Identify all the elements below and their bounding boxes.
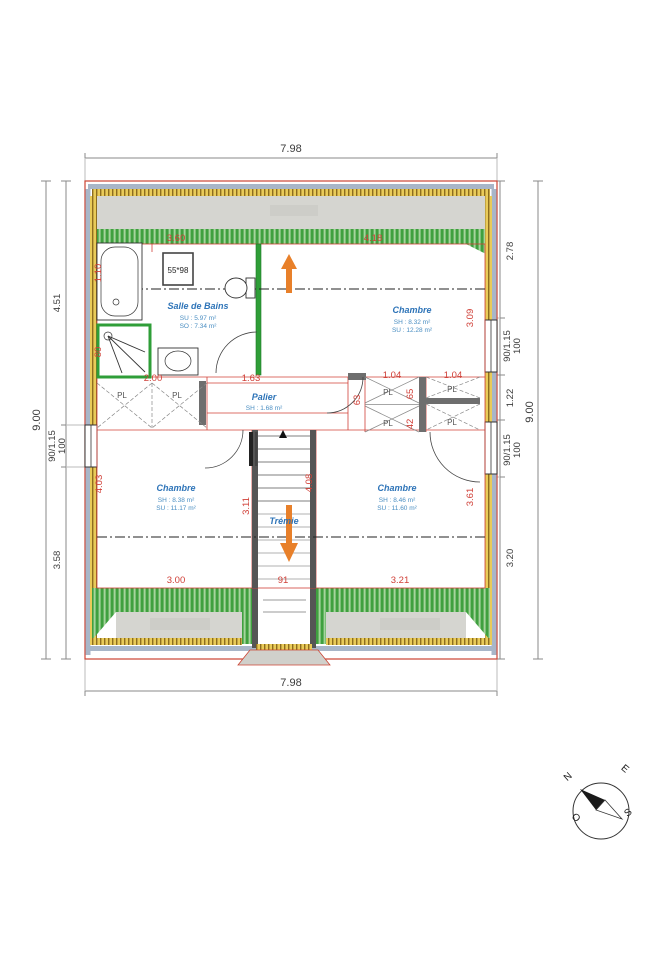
- right-window-2: [485, 422, 497, 474]
- label-bathroom-so: SO : 7.34 m²: [180, 323, 218, 330]
- dim-left-900: 9.00: [31, 409, 43, 430]
- compass-n: N: [562, 771, 575, 784]
- shower: [98, 325, 150, 377]
- dim-right-window1-h: 100: [512, 338, 523, 354]
- bottom-insulation-right: [326, 638, 490, 645]
- dim-2-00: 2.00: [144, 373, 163, 384]
- label-bedroom-sw-sh: SH : 8.38 m²: [158, 497, 195, 504]
- label-velux-size: 55*98: [168, 266, 189, 275]
- dim-right-900: 9.00: [524, 401, 536, 422]
- label-bedroom-se-sh: SH : 8.46 m²: [379, 497, 416, 504]
- label-stairwell: Trémie: [269, 516, 298, 526]
- label-pl-2: PL: [172, 391, 182, 400]
- dim-3-09: 3.09: [465, 309, 476, 328]
- bottom-insulation-left: [92, 638, 242, 645]
- dim-right-320: 3.20: [505, 549, 516, 568]
- label-bedroom-ne-sh: SH : 8.32 m²: [394, 319, 431, 326]
- dim-top-798: 7.98: [280, 143, 301, 155]
- left-wall-insulation-upper: [90, 196, 97, 425]
- dim-1-63: 1.63: [242, 373, 261, 384]
- label-pl-1: PL: [117, 391, 127, 400]
- left-wall-cladding: [86, 189, 91, 655]
- label-pl-5: PL: [447, 385, 457, 394]
- dim-80: 80: [93, 347, 104, 358]
- dim-right-122: 1.22: [505, 389, 516, 408]
- dim-63: 63: [352, 395, 363, 406]
- building-envelope: [85, 181, 497, 665]
- label-bathroom-su: SU : 5.97 m²: [180, 315, 217, 322]
- right-wall-insulation-upper: [485, 196, 492, 320]
- floor-plan-drawing: 3.60 4.18 1.10 80 2.00 1.63 1.04 1.04 65…: [0, 0, 664, 960]
- dim-1-04-b: 1.04: [444, 370, 463, 381]
- dim-91: 91: [278, 575, 289, 586]
- staircase: [258, 430, 310, 579]
- label-pl-4: PL: [383, 419, 393, 428]
- dim-left-window-h: 100: [57, 438, 68, 454]
- label-bathroom: Salle de Bains: [167, 301, 228, 311]
- toilet: [225, 278, 255, 298]
- dim-1-10: 1.10: [93, 264, 104, 283]
- dim-3-21: 3.21: [391, 575, 410, 586]
- dim-4-03: 4.03: [94, 475, 105, 494]
- green-partition-wall: [256, 244, 261, 375]
- embossed-watermark: [270, 205, 318, 216]
- dim-bottom-798: 7.98: [280, 677, 301, 689]
- label-pl-6: PL: [447, 418, 457, 427]
- dim-right-278: 2.78: [505, 242, 516, 261]
- bathroom-door-arc: [216, 332, 257, 373]
- red-dimensions: 3.60 4.18 1.10 80 2.00 1.63 1.04 1.04 65…: [93, 233, 476, 586]
- top-wall-cladding: [88, 184, 494, 189]
- sink: [158, 348, 198, 375]
- label-bedroom-se-su: SU : 11.60 m²: [377, 505, 417, 512]
- stair-direction-marker: [279, 430, 287, 438]
- compass-s: S: [622, 807, 634, 820]
- dim-3-00: 3.00: [167, 575, 186, 586]
- floor-plan-page: 3.60 4.18 1.10 80 2.00 1.63 1.04 1.04 65…: [0, 0, 664, 960]
- label-landing-sh: SH : 1.68 m²: [246, 405, 283, 412]
- dim-1-04-a: 1.04: [383, 370, 402, 381]
- embossed-watermark-right: [380, 618, 440, 630]
- compass-rose: N E S O: [562, 763, 635, 839]
- label-landing: Palier: [252, 392, 277, 402]
- dim-left-358: 3.58: [52, 551, 63, 570]
- compass-e: E: [619, 763, 631, 776]
- label-bedroom-ne: Chambre: [392, 305, 431, 315]
- up-arrow: [281, 254, 297, 293]
- dim-left-451: 4.51: [52, 294, 63, 313]
- dim-65: 65: [405, 389, 416, 400]
- dim-3-11: 3.11: [241, 497, 252, 515]
- bedroom-se-door-arc: [430, 432, 480, 482]
- dim-3-61: 3.61: [465, 488, 476, 507]
- label-bedroom-se: Chambre: [377, 483, 416, 493]
- stair-wall-right: [310, 430, 316, 588]
- top-roof-slope-hatch: [92, 229, 490, 244]
- label-bedroom-ne-su: SU : 12.28 m²: [392, 327, 433, 334]
- left-window: [85, 425, 97, 467]
- dim-3-60: 3.60: [167, 233, 186, 244]
- embossed-watermark-left: [150, 618, 210, 630]
- down-arrow: [280, 505, 298, 562]
- dim-42: 42: [405, 419, 416, 430]
- label-pl-3: PL: [383, 388, 393, 397]
- label-bedroom-sw: Chambre: [156, 483, 195, 493]
- label-bedroom-sw-su: SU : 11.17 m²: [156, 505, 196, 512]
- dim-4-18: 4.18: [364, 233, 383, 244]
- right-wall-insulation-mid: [485, 372, 492, 422]
- top-wall-insulation: [92, 189, 490, 196]
- bedroom-sw-door-arc: [205, 430, 243, 468]
- dim-right-window2-h: 100: [512, 442, 523, 458]
- right-window-1: [485, 320, 497, 372]
- compass-o: O: [569, 811, 582, 825]
- dim-4-08: 4.08: [304, 474, 315, 493]
